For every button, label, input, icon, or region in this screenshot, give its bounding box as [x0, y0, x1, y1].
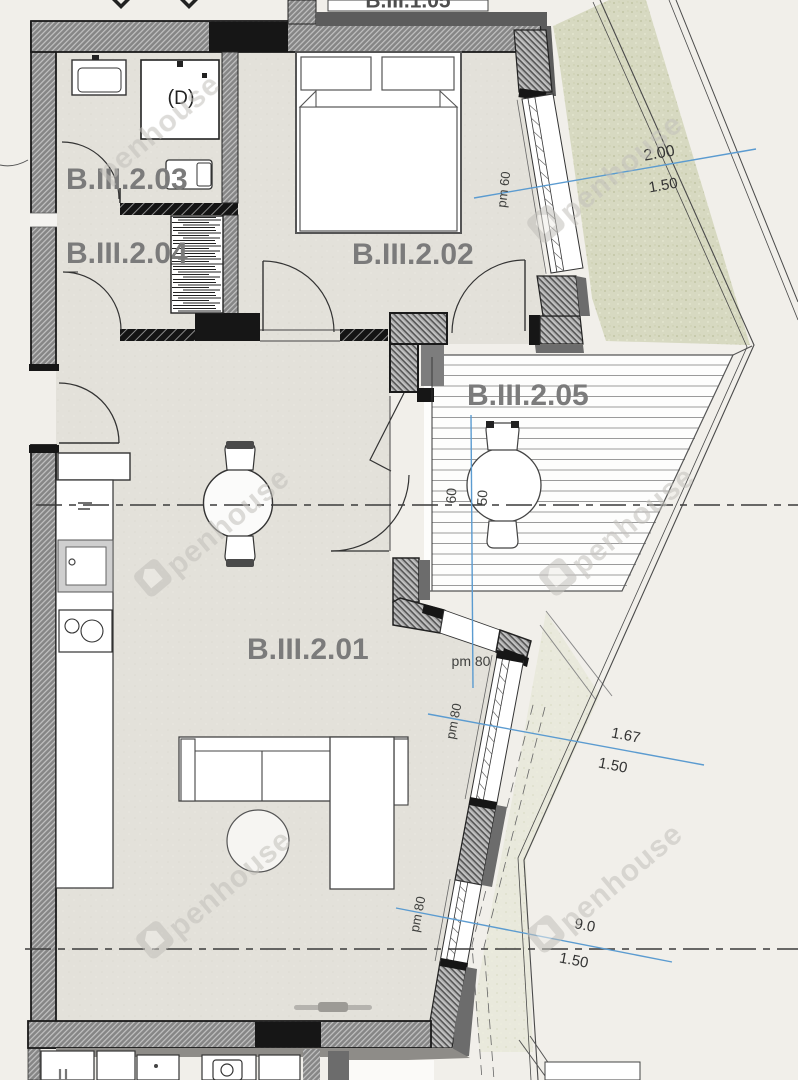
svg-text:B.III.2.02: B.III.2.02	[352, 238, 474, 271]
svg-text:pm 80: pm 80	[452, 653, 491, 669]
svg-text:B.III.1.05: B.III.1.05	[365, 0, 451, 13]
svg-text:60: 60	[443, 487, 460, 504]
svg-text:B.III.2.05: B.III.2.05	[467, 379, 589, 412]
svg-text:B.III.2.04: B.III.2.04	[66, 237, 188, 270]
svg-text:50: 50	[474, 489, 491, 506]
svg-text:B.III.2.01: B.III.2.01	[247, 633, 369, 666]
